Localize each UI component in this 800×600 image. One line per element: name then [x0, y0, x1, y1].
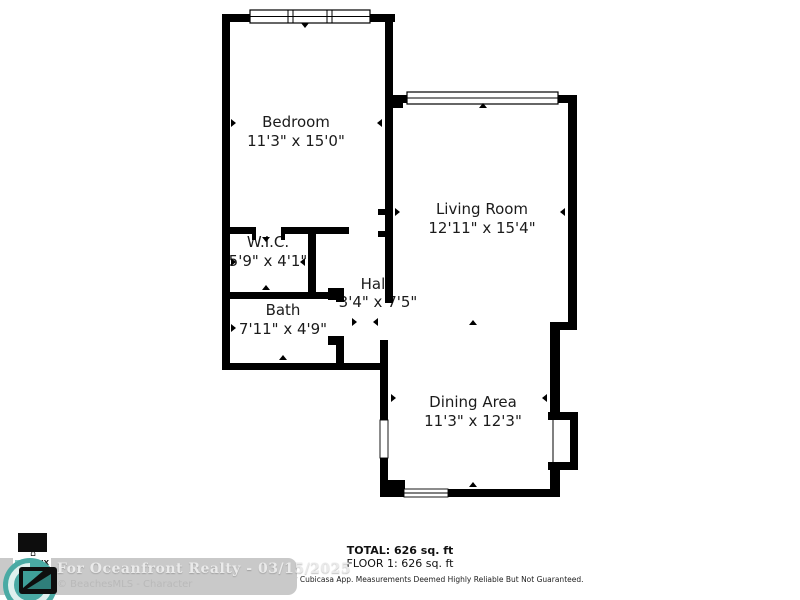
measurement-arrow-icon [231, 119, 236, 127]
measurement-arrow-icon [301, 23, 309, 28]
room-dims-bedroom: 11'3" x 15'0" [247, 132, 345, 150]
measurement-arrow-icon [542, 394, 547, 402]
room-label-living-room: Living Room [436, 200, 528, 218]
measurement-arrow-icon [560, 208, 565, 216]
room-dims-dining-area: 11'3" x 12'3" [424, 412, 522, 430]
floor-plan-drawing: Bedroom 11'3" x 15'0" Living Room 12'11"… [0, 0, 800, 600]
total-area-text: TOTAL: 626 sq. ft [0, 544, 800, 557]
measurement-arrow-icon [469, 482, 477, 487]
room-label-bedroom: Bedroom [262, 113, 330, 131]
room-dims-hall: 3'4" x 7'5" [339, 293, 418, 311]
floor-plan-page: Bedroom 11'3" x 15'0" Living Room 12'11"… [0, 0, 800, 600]
measurement-arrow-icon [352, 318, 357, 326]
measurement-arrow-icon [395, 208, 400, 216]
room-dims-living-room: 12'11" x 15'4" [428, 219, 535, 237]
room-label-dining-area: Dining Area [429, 393, 517, 411]
measurement-arrow-icon [262, 285, 270, 290]
room-dims-bath: 7'11" x 4'9" [239, 320, 327, 338]
measurement-arrow-icon [391, 394, 396, 402]
black-square-logo-icon [19, 567, 57, 594]
watermark-mls-text: © BeachesMLS - Character [57, 579, 192, 590]
room-dims-wic: 5'9" x 4'1" [229, 252, 308, 270]
measurement-arrow-icon [231, 324, 236, 332]
measurement-arrow-icon [279, 355, 287, 360]
dining-left-window-icon [380, 420, 388, 458]
watermark-realty-text: For Oceanfront Realty - 03/15/2025 [57, 561, 351, 577]
room-label-bath: Bath [266, 301, 301, 319]
measurement-arrow-icon [377, 119, 382, 127]
teal-swirl-logo-icon [2, 557, 64, 600]
measurement-arrow-icon [469, 320, 477, 325]
measurement-arrow-icon [373, 318, 378, 326]
